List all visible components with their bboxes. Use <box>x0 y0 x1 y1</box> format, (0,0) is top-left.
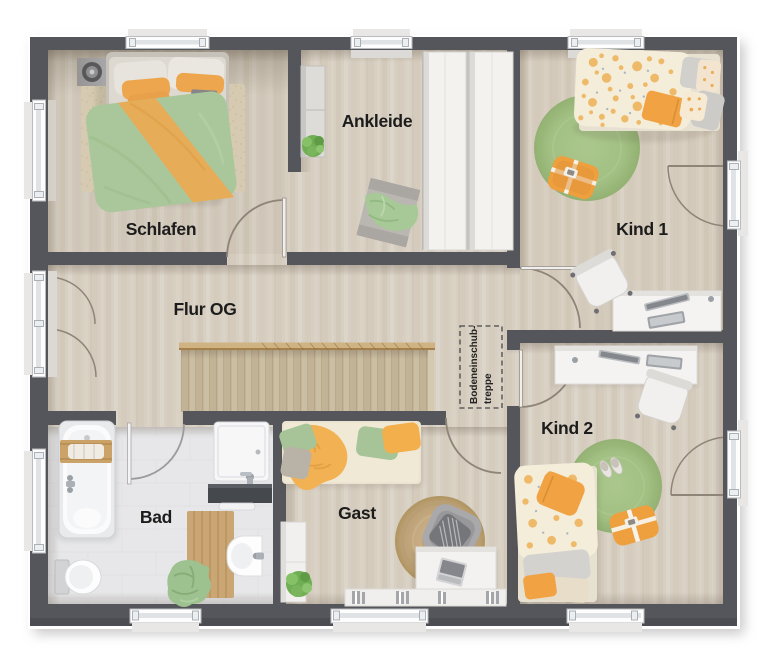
svg-text:Ankleide: Ankleide <box>342 111 413 131</box>
svg-text:Flur OG: Flur OG <box>173 299 236 319</box>
svg-text:Kind 1: Kind 1 <box>616 219 668 239</box>
svg-text:treppe: treppe <box>483 373 494 404</box>
svg-text:Schlafen: Schlafen <box>126 219 197 239</box>
svg-text:Kind 2: Kind 2 <box>541 418 593 438</box>
svg-text:Bad: Bad <box>140 507 172 527</box>
svg-text:Bodeneinschub-: Bodeneinschub- <box>469 326 480 404</box>
svg-text:Gast: Gast <box>338 503 376 523</box>
